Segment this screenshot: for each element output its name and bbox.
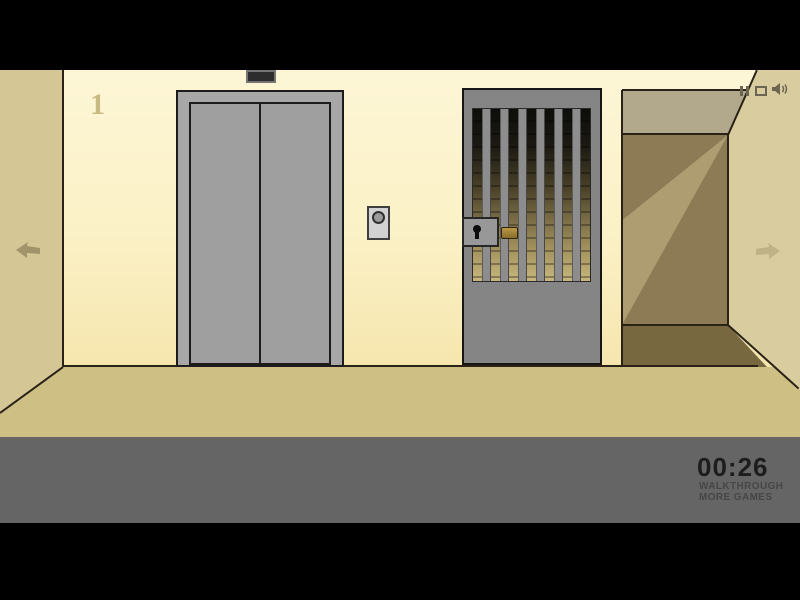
sound-button[interactable] <box>772 82 790 94</box>
ceiling-top-line <box>622 89 749 91</box>
gate-bar <box>482 109 491 281</box>
elevator-floor-indicator <box>246 70 276 83</box>
corridor-back-wall[interactable] <box>622 135 728 325</box>
pause-icon <box>740 86 749 96</box>
gate-bar <box>500 109 509 281</box>
arrow-right-icon <box>752 241 782 263</box>
side-wall-corner-line <box>62 70 64 367</box>
top-letterbox <box>0 0 800 70</box>
keyhole-stem <box>475 231 479 239</box>
elevator[interactable] <box>176 90 344 367</box>
timer-display: 00:26 <box>697 452 769 483</box>
walkthrough-link[interactable]: WALKTHROUGH <box>699 481 783 492</box>
more-games-link[interactable]: MORE GAMES <box>699 492 772 503</box>
wall-floor-line <box>63 365 758 367</box>
gate-bar <box>554 109 563 281</box>
gate-lock[interactable] <box>462 217 499 247</box>
elevator-door-left[interactable] <box>189 102 260 365</box>
quality-button[interactable] <box>755 83 767 93</box>
corridor-right-edge-line <box>727 135 729 325</box>
elevator-door-right[interactable] <box>260 102 331 365</box>
navigate-right-button[interactable] <box>752 241 782 263</box>
floor-number-label: 1 <box>90 88 105 122</box>
floor <box>0 367 800 437</box>
quality-icon <box>755 86 767 96</box>
hud-bar <box>0 437 800 523</box>
gate-bars-window[interactable] <box>472 108 591 282</box>
game-stage: 1 <box>0 0 800 600</box>
navigate-left-button[interactable] <box>14 240 44 262</box>
bottom-letterbox <box>0 523 800 600</box>
sound-on-icon <box>772 83 790 95</box>
ceiling-bottom-line <box>622 133 729 135</box>
pause-button[interactable] <box>740 83 749 93</box>
elevator-call-button[interactable] <box>372 211 385 224</box>
gate-bar <box>536 109 545 281</box>
elevator-doors[interactable] <box>189 102 331 365</box>
elevator-call-panel[interactable] <box>367 206 390 240</box>
gate-bar <box>518 109 527 281</box>
gate-bar <box>572 109 581 281</box>
back-wall-bottom-line <box>622 324 729 326</box>
gate-knob[interactable] <box>501 227 518 239</box>
corridor-light-shaft <box>622 135 728 325</box>
arrow-left-icon <box>14 240 44 262</box>
barred-gate[interactable] <box>462 88 602 365</box>
